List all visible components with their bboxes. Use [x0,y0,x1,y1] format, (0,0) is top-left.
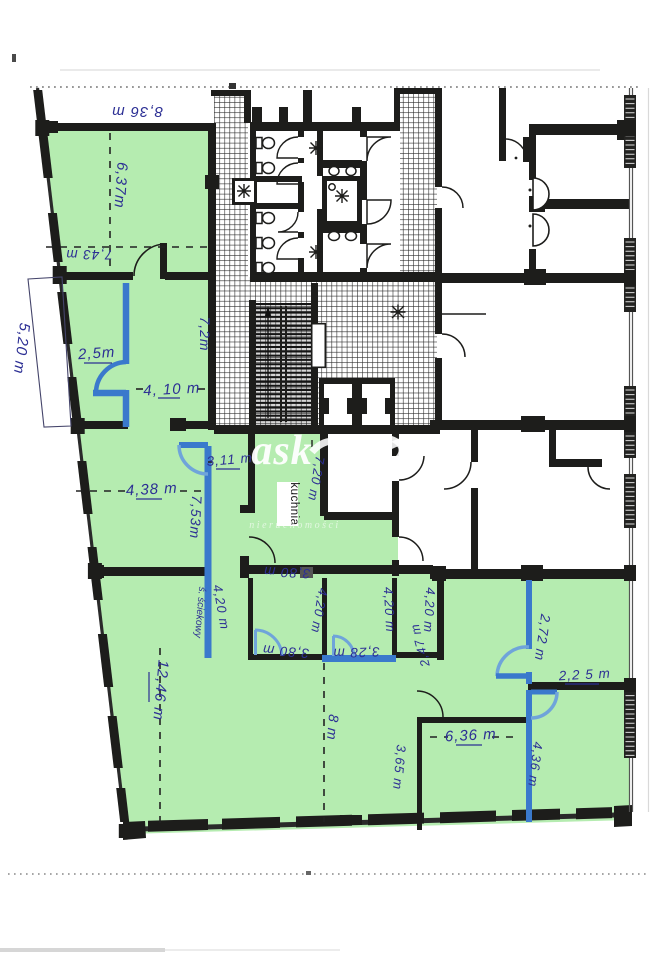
svg-text:6,36 m: 6,36 m [444,726,497,746]
svg-text:3,28 m: 3,28 m [332,644,380,661]
svg-text:4, 10 m: 4, 10 m [143,380,201,400]
svg-text:ask: ask [251,428,312,474]
svg-text:2,2 5 m: 2,2 5 m [557,666,611,684]
svg-text:7,43 m: 7,43 m [65,247,112,262]
svg-text:4,20 m: 4,20 m [421,587,438,633]
svg-text:4,20 m: 4,20 m [381,587,398,633]
svg-text:nieruchomości: nieruchomości [249,520,340,531]
svg-text:8,36 m: 8,36 m [111,103,163,120]
svg-text:4,38 m: 4,38 m [125,480,178,500]
svg-text:2,5m: 2,5m [76,344,115,364]
svg-text:3,80 m: 3,80 m [263,564,311,581]
svg-text:6,37m: 6,37m [110,161,130,209]
svg-text:7,2m: 7,2m [197,316,213,351]
svg-text:8 m: 8 m [324,714,342,742]
svg-text:7,53m: 7,53m [187,495,205,540]
